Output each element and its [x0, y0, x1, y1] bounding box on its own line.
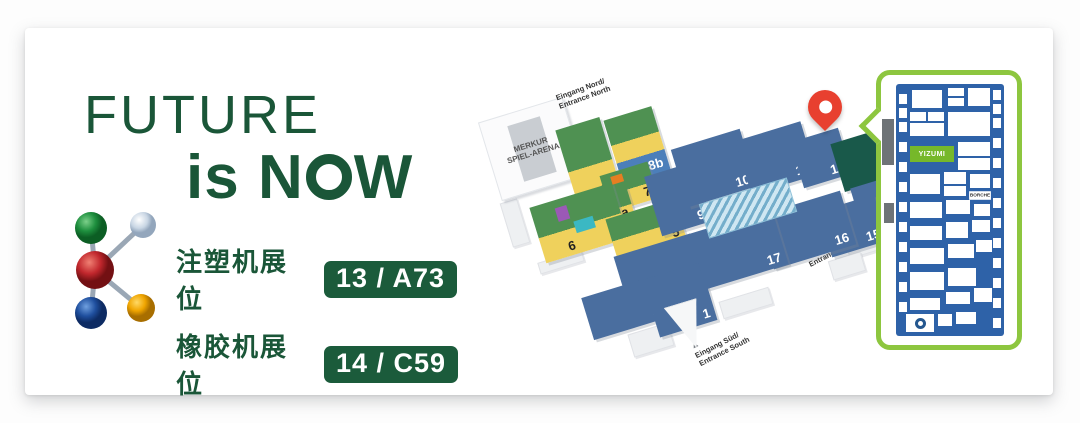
booth-block	[899, 122, 907, 132]
headline-line1: FUTURE	[84, 84, 321, 146]
booth-block	[944, 172, 966, 184]
booth-block	[910, 248, 944, 264]
booth-block	[910, 202, 942, 218]
headline-n: N	[258, 143, 304, 212]
hall13-floorplan: YIZUMI BORCHE	[896, 84, 1004, 336]
booth-block	[946, 200, 970, 214]
booth-block	[910, 272, 944, 290]
booth-block	[993, 90, 1001, 100]
booth-block	[972, 220, 990, 232]
booth-badge: 13 / A73	[324, 261, 457, 298]
booth-block	[910, 112, 926, 121]
booth-block	[993, 238, 1001, 248]
booth-block	[899, 108, 907, 118]
booth-block	[993, 178, 1001, 188]
booth-block	[910, 174, 940, 194]
booth-block	[912, 90, 942, 108]
booth-block	[948, 98, 964, 106]
service-building	[719, 287, 774, 319]
booth-label: 橡胶机展位	[176, 327, 314, 401]
booth-block	[970, 174, 990, 188]
booth-block	[910, 123, 944, 136]
booth-block	[993, 318, 1001, 328]
outlined-o-icon: O	[306, 154, 352, 200]
booth-block	[993, 218, 1001, 228]
booth-block	[974, 204, 990, 216]
fairground-map: MERKUR SPIEL-ARENA Eingang Nord/ Entranc…	[480, 80, 920, 380]
booth-block	[976, 240, 992, 252]
booth-block	[899, 202, 907, 212]
booth-block	[958, 142, 990, 156]
booth-block	[899, 302, 907, 312]
entrance-north-label: Eingang Nord/ Entrance North	[555, 75, 612, 110]
booth-block	[899, 182, 907, 192]
circle-logo-icon	[915, 318, 926, 329]
headline-is: is	[186, 143, 240, 212]
booth-block	[958, 158, 990, 170]
booth-block	[993, 104, 1001, 114]
booth-block	[899, 142, 907, 152]
booth-block	[946, 292, 970, 304]
borche-booth: BORCHE	[969, 191, 991, 200]
booth-block	[938, 314, 952, 326]
yizumi-booth: YIZUMI	[910, 146, 954, 162]
booth-block	[948, 244, 974, 258]
booth-block	[993, 138, 1001, 148]
booth-block	[928, 112, 944, 121]
booth-block	[948, 88, 964, 96]
booth-block	[948, 268, 976, 286]
hall-7-patch	[610, 174, 624, 185]
booth-block	[993, 258, 1001, 268]
headline-w: W	[354, 143, 414, 212]
hall-6-patch	[555, 205, 571, 222]
booth-badge: 14 / C59	[324, 346, 458, 383]
booth-block	[993, 278, 1001, 288]
booth-label: 注塑机展位	[176, 242, 314, 316]
booth-row-rubber: 橡胶机展位 14 / C59	[176, 327, 458, 401]
booth-info: 注塑机展位 13 / A73 橡胶机展位 14 / C59	[176, 242, 458, 401]
location-pin-icon	[801, 83, 849, 131]
booth-block	[968, 88, 990, 106]
service-building	[500, 198, 531, 247]
plan-attachment	[882, 119, 894, 165]
booth-block	[946, 222, 968, 238]
booth-block	[899, 282, 907, 292]
callout-panel: YIZUMI BORCHE	[876, 70, 1022, 350]
booth-block	[956, 312, 976, 324]
headline-line2: is NOW	[186, 142, 413, 213]
booth-block	[910, 298, 940, 310]
hall-6-patch	[573, 216, 596, 233]
booth-block	[993, 298, 1001, 308]
booth-block	[899, 162, 907, 172]
booth-block	[899, 94, 907, 104]
booth-block	[993, 158, 1001, 168]
booth-block	[944, 186, 966, 196]
booth-block	[993, 198, 1001, 208]
booth-block	[899, 222, 907, 232]
k-show-logo-icon	[58, 206, 180, 338]
booth-block	[899, 242, 907, 252]
booth-block	[948, 112, 990, 136]
plan-attachment	[884, 203, 894, 223]
booth-row-injection: 注塑机展位 13 / A73	[176, 242, 458, 316]
booth-block	[974, 288, 992, 302]
logo-booth	[906, 314, 934, 332]
booth-block	[899, 262, 907, 272]
booth-block	[993, 118, 1001, 128]
booth-block	[910, 226, 942, 240]
